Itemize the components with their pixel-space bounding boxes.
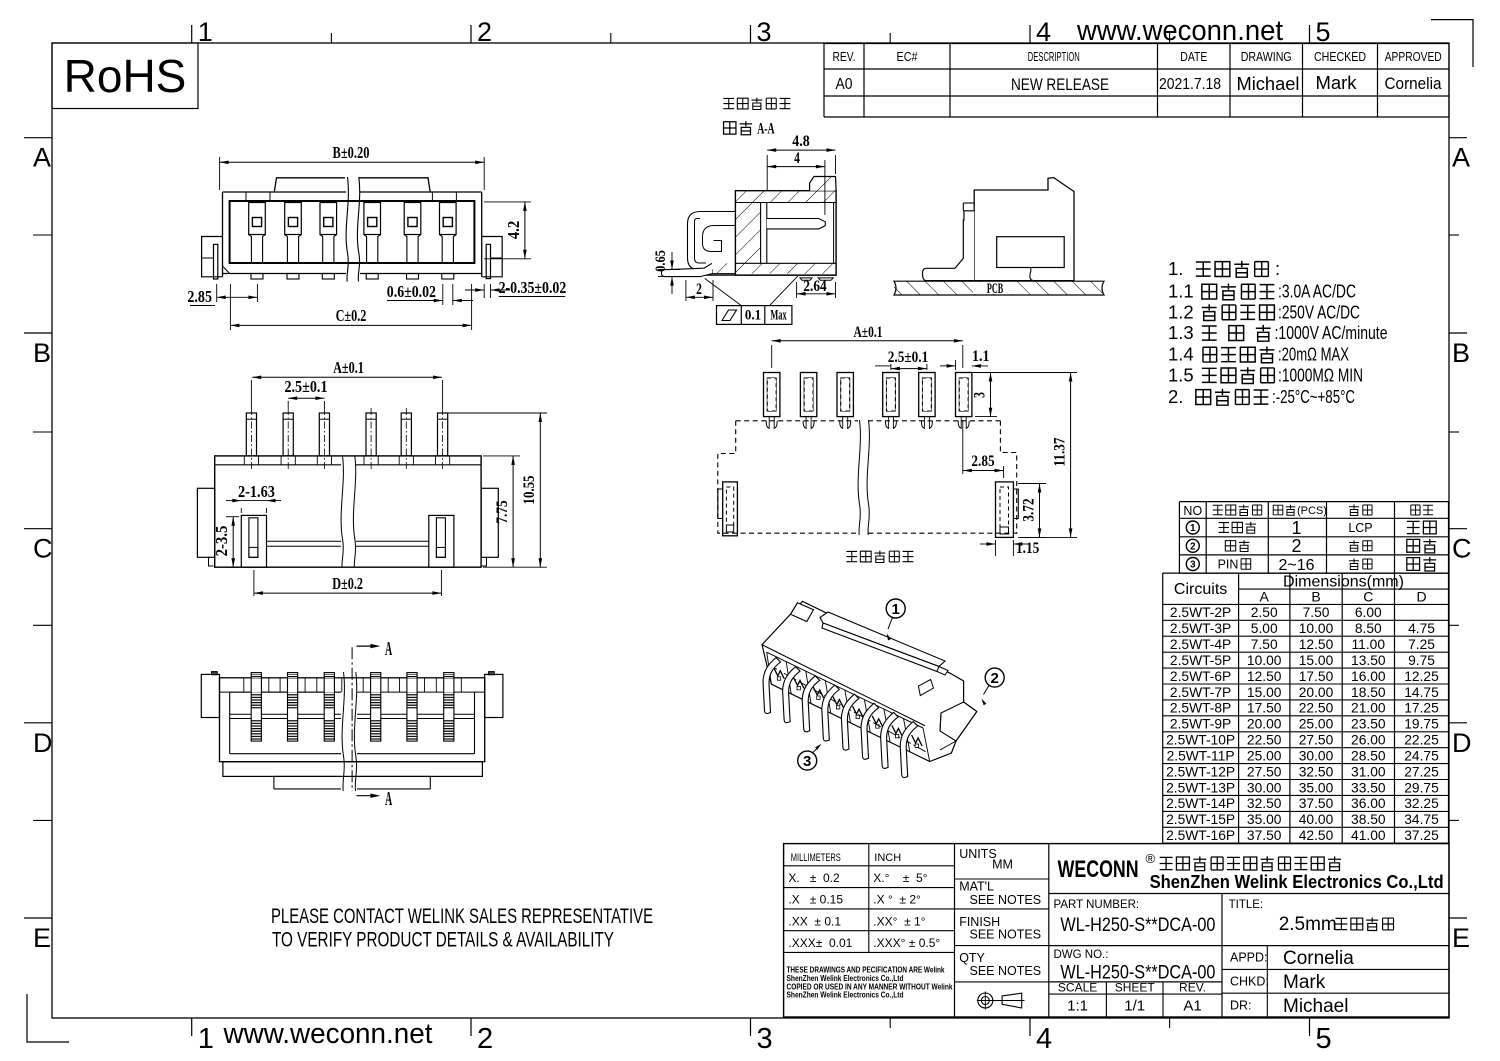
svg-text:17.25: 17.25 (1404, 701, 1439, 716)
svg-text:2.85: 2.85 (971, 453, 994, 470)
svg-text:7.75: 7.75 (494, 500, 511, 523)
svg-text:A±0.1: A±0.1 (854, 324, 883, 341)
svg-text:16.00: 16.00 (1351, 669, 1386, 684)
svg-text:17.50: 17.50 (1247, 701, 1282, 716)
svg-text:27.50: 27.50 (1247, 764, 1282, 779)
svg-text:41.00: 41.00 (1351, 828, 1386, 843)
svg-text:2: 2 (1291, 536, 1301, 556)
svg-text:38.50: 38.50 (1351, 812, 1386, 827)
svg-text:D: D (1416, 589, 1426, 605)
svg-text:Michael: Michael (1283, 996, 1348, 1017)
svg-text:4.75: 4.75 (1408, 621, 1435, 636)
svg-text:1.5: 1.5 (1168, 364, 1194, 385)
svg-text:Max: Max (770, 308, 787, 324)
svg-text:2~16: 2~16 (1278, 557, 1314, 574)
svg-text:2.5WT-11P: 2.5WT-11P (1167, 748, 1235, 763)
svg-text:11.00: 11.00 (1352, 637, 1386, 652)
svg-text:35.00: 35.00 (1247, 812, 1282, 827)
svg-text:27.25: 27.25 (1404, 764, 1439, 779)
svg-text:Circuits: Circuits (1174, 581, 1227, 598)
svg-text:RoHS: RoHS (64, 50, 187, 102)
svg-text:MAT'L: MAT'L (959, 880, 994, 894)
svg-text:1.15: 1.15 (1016, 540, 1039, 557)
svg-text::1000MΩ MIN: :1000MΩ MIN (1278, 364, 1363, 385)
svg-text::250V AC/DC: :250V AC/DC (1278, 301, 1360, 322)
svg-text:4.8: 4.8 (792, 133, 809, 150)
svg-text:.X ± 0.15: .X ± 0.15 (788, 893, 843, 907)
svg-text:10.00: 10.00 (1247, 653, 1282, 668)
svg-text:1.1: 1.1 (972, 348, 989, 365)
svg-text:30.00: 30.00 (1247, 780, 1282, 795)
svg-text:20.00: 20.00 (1299, 685, 1334, 700)
svg-text:MILLIMETERS: MILLIMETERS (791, 852, 841, 864)
svg-text:NO: NO (1183, 504, 1202, 518)
svg-text:.XXX± 0.01: .XXX± 0.01 (788, 936, 852, 950)
svg-text:A0: A0 (836, 76, 853, 93)
svg-text:2.5WT-14P: 2.5WT-14P (1166, 796, 1235, 811)
svg-text:2.5WT-16P: 2.5WT-16P (1166, 828, 1235, 843)
svg-text:11.37: 11.37 (1052, 438, 1069, 467)
svg-text:Cornelia: Cornelia (1385, 74, 1442, 93)
svg-text:20.00: 20.00 (1247, 717, 1282, 732)
svg-text:A: A (1452, 143, 1470, 173)
svg-text:DRAWING: DRAWING (1241, 50, 1292, 64)
svg-text:REV.: REV. (833, 50, 856, 64)
svg-text:SEE NOTES: SEE NOTES (970, 928, 1042, 942)
svg-text:2: 2 (477, 1023, 493, 1055)
svg-text:2021.7.18: 2021.7.18 (1159, 76, 1221, 93)
svg-text:15.00: 15.00 (1299, 653, 1334, 668)
svg-text:X. ± 0.2: X. ± 0.2 (788, 871, 840, 885)
svg-text:1: 1 (198, 1023, 214, 1055)
svg-text:22.50: 22.50 (1299, 701, 1334, 716)
svg-text:3.72: 3.72 (1021, 498, 1038, 521)
svg-text:1: 1 (1190, 523, 1196, 534)
svg-text:TO VERIFY PRODUCT DETAILS & AV: TO VERIFY PRODUCT DETAILS & AVAILABILITY (272, 928, 614, 952)
svg-text:19.75: 19.75 (1404, 717, 1439, 732)
svg-text:WECONN: WECONN (1058, 856, 1139, 883)
svg-text:2.5mm: 2.5mm (1279, 914, 1337, 935)
svg-text:2.50: 2.50 (1251, 605, 1278, 620)
svg-text:25.00: 25.00 (1299, 717, 1334, 732)
svg-text:LCP: LCP (1348, 521, 1372, 535)
svg-text:2.5WT-12P: 2.5WT-12P (1166, 764, 1235, 779)
svg-text:7.50: 7.50 (1303, 605, 1330, 620)
svg-text:30.00: 30.00 (1299, 748, 1334, 763)
svg-text:2.5WT-15P: 2.5WT-15P (1166, 812, 1235, 827)
svg-text:SHEET: SHEET (1115, 981, 1156, 995)
svg-text:4: 4 (1036, 17, 1051, 47)
svg-text:DWG NO.:: DWG NO.: (1054, 949, 1109, 961)
svg-text:24.75: 24.75 (1404, 748, 1439, 763)
svg-text:31.00: 31.00 (1351, 764, 1386, 779)
svg-text:Dimensions(mm): Dimensions(mm) (1283, 574, 1404, 591)
svg-text:26.00: 26.00 (1351, 733, 1386, 748)
svg-text:2.5WT-13P: 2.5WT-13P (1166, 780, 1235, 795)
svg-text:.XX ± 0.1: .XX ± 0.1 (788, 914, 841, 928)
svg-text:A: A (385, 638, 392, 660)
svg-text:QTY: QTY (959, 951, 985, 965)
svg-text:12.50: 12.50 (1299, 637, 1334, 652)
svg-text:A: A (33, 143, 51, 173)
svg-text:6.00: 6.00 (1355, 605, 1382, 620)
svg-text:2.5WT-8P: 2.5WT-8P (1170, 701, 1231, 716)
svg-text:2-1.63: 2-1.63 (238, 482, 275, 501)
svg-text:37.50: 37.50 (1299, 796, 1334, 811)
svg-text:.X ° ± 2°: .X ° ± 2° (873, 893, 921, 907)
svg-text:DATE: DATE (1180, 50, 1207, 64)
svg-text:1.3: 1.3 (1168, 322, 1194, 343)
svg-text:36.00: 36.00 (1351, 796, 1386, 811)
svg-text:®: ® (1146, 851, 1156, 866)
svg-text:Cornelia: Cornelia (1283, 948, 1354, 969)
svg-text:2.5WT-3P: 2.5WT-3P (1170, 621, 1231, 636)
svg-text:2.64: 2.64 (803, 278, 826, 295)
svg-text:2: 2 (991, 670, 999, 687)
svg-text:33.50: 33.50 (1351, 780, 1386, 795)
svg-text:34.75: 34.75 (1404, 812, 1439, 827)
svg-text:3: 3 (972, 392, 989, 398)
svg-text:1.: 1. (1168, 258, 1183, 279)
svg-text:5: 5 (1316, 17, 1331, 47)
svg-text:2.5WT-6P: 2.5WT-6P (1170, 669, 1231, 684)
svg-text:2.5WT-9P: 2.5WT-9P (1170, 717, 1231, 732)
svg-text:C±0.2: C±0.2 (336, 306, 367, 325)
svg-text:WL-H250-S**DCA-00: WL-H250-S**DCA-00 (1060, 914, 1215, 936)
svg-text:A: A (385, 788, 392, 810)
svg-text:D±0.2: D±0.2 (332, 574, 363, 593)
svg-text:B: B (1452, 338, 1470, 368)
svg-text:27.50: 27.50 (1299, 733, 1334, 748)
svg-text:A1: A1 (1183, 998, 1201, 1015)
svg-text:2.: 2. (1168, 386, 1183, 407)
svg-text:42.50: 42.50 (1299, 828, 1334, 843)
svg-text::3.0A AC/DC: :3.0A AC/DC (1278, 281, 1356, 302)
svg-text:Michael: Michael (1237, 74, 1300, 94)
svg-text:1: 1 (1291, 518, 1301, 538)
svg-text:X.° ± 5°: X.° ± 5° (873, 871, 927, 885)
svg-text:1/1: 1/1 (1124, 998, 1145, 1015)
svg-text:32.50: 32.50 (1247, 796, 1282, 811)
svg-text:C: C (1452, 534, 1472, 564)
svg-text:2.5WT-5P: 2.5WT-5P (1170, 653, 1231, 668)
svg-text:.XX° ± 1°: .XX° ± 1° (873, 914, 925, 928)
svg-text:2.5WT-10P: 2.5WT-10P (1166, 733, 1235, 748)
svg-text:B±0.20: B±0.20 (333, 143, 370, 162)
svg-text:17.50: 17.50 (1299, 669, 1334, 684)
svg-text:D: D (1452, 728, 1472, 758)
svg-text:8.50: 8.50 (1355, 621, 1382, 636)
svg-text:A: A (1260, 589, 1270, 605)
svg-text:1.2: 1.2 (1168, 301, 1194, 322)
svg-text:REV.: REV. (1179, 981, 1206, 995)
svg-text:2.85: 2.85 (187, 287, 212, 306)
svg-text:7.50: 7.50 (1251, 637, 1278, 652)
svg-text:Mark: Mark (1283, 972, 1326, 993)
svg-text:14.75: 14.75 (1404, 685, 1439, 700)
svg-text:TITLE:: TITLE: (1229, 899, 1264, 911)
svg-text:B: B (33, 338, 51, 368)
svg-text:2-3.5: 2-3.5 (212, 526, 231, 557)
svg-text:18.50: 18.50 (1351, 685, 1386, 700)
svg-text:1.4: 1.4 (1168, 344, 1194, 365)
svg-text:22.50: 22.50 (1247, 733, 1282, 748)
svg-text:4.2: 4.2 (504, 221, 523, 240)
svg-text:37.50: 37.50 (1247, 828, 1282, 843)
svg-text::1000V AC/minute: :1000V AC/minute (1275, 322, 1388, 343)
svg-text::: : (1275, 258, 1280, 279)
svg-text:CHKD:: CHKD: (1230, 975, 1269, 989)
svg-text:40.00: 40.00 (1299, 812, 1334, 827)
svg-text:32.50: 32.50 (1299, 764, 1334, 779)
svg-text:3: 3 (757, 17, 772, 47)
svg-text:2.5±0.1: 2.5±0.1 (888, 349, 929, 366)
svg-text:APPROVED: APPROVED (1385, 50, 1442, 64)
svg-text:5: 5 (1316, 1023, 1332, 1055)
svg-text:4: 4 (794, 150, 800, 167)
svg-text:1.1: 1.1 (1168, 281, 1194, 302)
svg-text:0.6±0.02: 0.6±0.02 (387, 282, 436, 301)
svg-text:32.25: 32.25 (1404, 796, 1439, 811)
svg-text:10.55: 10.55 (521, 476, 538, 505)
svg-text:A-A: A-A (757, 121, 775, 138)
svg-text:3: 3 (803, 753, 811, 770)
svg-text:12.50: 12.50 (1247, 669, 1282, 684)
svg-text:C: C (1363, 589, 1373, 605)
svg-text:C: C (33, 534, 53, 564)
svg-text:21.00: 21.00 (1351, 701, 1386, 716)
svg-text:1:1: 1:1 (1067, 998, 1088, 1015)
svg-text:PIN: PIN (1218, 558, 1239, 572)
svg-text:7.25: 7.25 (1408, 637, 1435, 652)
svg-text:3: 3 (757, 1023, 773, 1055)
svg-text:ShenZhen Welink Electronics Co: ShenZhen Welink Electronics Co.,Ltd (787, 991, 904, 1000)
svg-text:PART NUMBER:: PART NUMBER: (1054, 899, 1140, 911)
svg-text:B: B (1311, 589, 1320, 605)
svg-text:2: 2 (696, 281, 702, 298)
svg-text:9.75: 9.75 (1408, 653, 1435, 668)
svg-text:13.50: 13.50 (1351, 653, 1386, 668)
svg-text:UNITS: UNITS (959, 847, 997, 861)
svg-text:ShenZhen Welink Electronics Co: ShenZhen Welink Electronics Co.,Ltd (1150, 872, 1444, 892)
svg-text:INCH: INCH (874, 852, 901, 864)
svg-text:5.00: 5.00 (1251, 621, 1278, 636)
svg-text:D: D (33, 728, 53, 758)
svg-text:28.50: 28.50 (1351, 748, 1386, 763)
svg-text:CHECKED: CHECKED (1314, 50, 1366, 64)
svg-text:APPD:: APPD: (1230, 951, 1268, 965)
svg-text:PCB: PCB (987, 281, 1003, 297)
svg-text:MM: MM (992, 858, 1013, 872)
svg-text:37.25: 37.25 (1404, 828, 1439, 843)
svg-text::-25°C~+85°C: :-25°C~+85°C (1272, 386, 1355, 407)
svg-text:0.1: 0.1 (745, 308, 761, 324)
svg-text:3: 3 (1190, 560, 1196, 571)
svg-text:4: 4 (1036, 1023, 1052, 1055)
svg-text:1: 1 (198, 17, 213, 47)
svg-text:Mark: Mark (1316, 73, 1358, 93)
svg-text:2.5WT-7P: 2.5WT-7P (1170, 685, 1231, 700)
svg-text:12.25: 12.25 (1404, 669, 1439, 684)
svg-text:E: E (1452, 923, 1470, 953)
svg-text:29.75: 29.75 (1404, 780, 1439, 795)
svg-text:2.5±0.1: 2.5±0.1 (284, 377, 327, 396)
svg-text:0.65: 0.65 (653, 250, 669, 272)
svg-text:25.00: 25.00 (1247, 748, 1282, 763)
svg-text:www.weconn.net: www.weconn.net (1076, 15, 1283, 47)
svg-text::20mΩ MAX: :20mΩ MAX (1278, 344, 1349, 365)
svg-text:DR:: DR: (1230, 999, 1252, 1013)
svg-text:SEE NOTES: SEE NOTES (970, 893, 1042, 907)
svg-text:E: E (33, 923, 51, 953)
svg-text:2.5WT-2P: 2.5WT-2P (1170, 605, 1231, 620)
svg-text:22.25: 22.25 (1404, 733, 1439, 748)
svg-text:PLEASE CONTACT WELINK SALES RE: PLEASE CONTACT WELINK SALES REPRESENTATI… (271, 904, 653, 928)
svg-text:EC#: EC# (897, 50, 918, 64)
svg-text:SEE NOTES: SEE NOTES (970, 964, 1042, 978)
svg-text:2.5WT-4P: 2.5WT-4P (1170, 637, 1231, 652)
svg-text:35.00: 35.00 (1299, 780, 1334, 795)
svg-text:1: 1 (892, 601, 900, 618)
svg-text:23.50: 23.50 (1351, 717, 1386, 732)
svg-text:2: 2 (1190, 541, 1196, 552)
svg-text:SCALE: SCALE (1058, 981, 1097, 995)
svg-text:NEW RELEASE: NEW RELEASE (1011, 75, 1109, 94)
svg-text:www.weconn.net: www.weconn.net (223, 1018, 433, 1050)
svg-text:DESCRIPTION: DESCRIPTION (1028, 50, 1080, 64)
svg-text:10.00: 10.00 (1299, 621, 1334, 636)
svg-text:A±0.1: A±0.1 (333, 358, 364, 377)
svg-text:2-0.35±0.02: 2-0.35±0.02 (499, 278, 567, 297)
svg-text:(PCS): (PCS) (1297, 505, 1327, 517)
svg-text:2: 2 (477, 17, 492, 47)
svg-text:.XXX° ± 0.5°: .XXX° ± 0.5° (873, 936, 940, 950)
svg-text:15.00: 15.00 (1247, 685, 1282, 700)
